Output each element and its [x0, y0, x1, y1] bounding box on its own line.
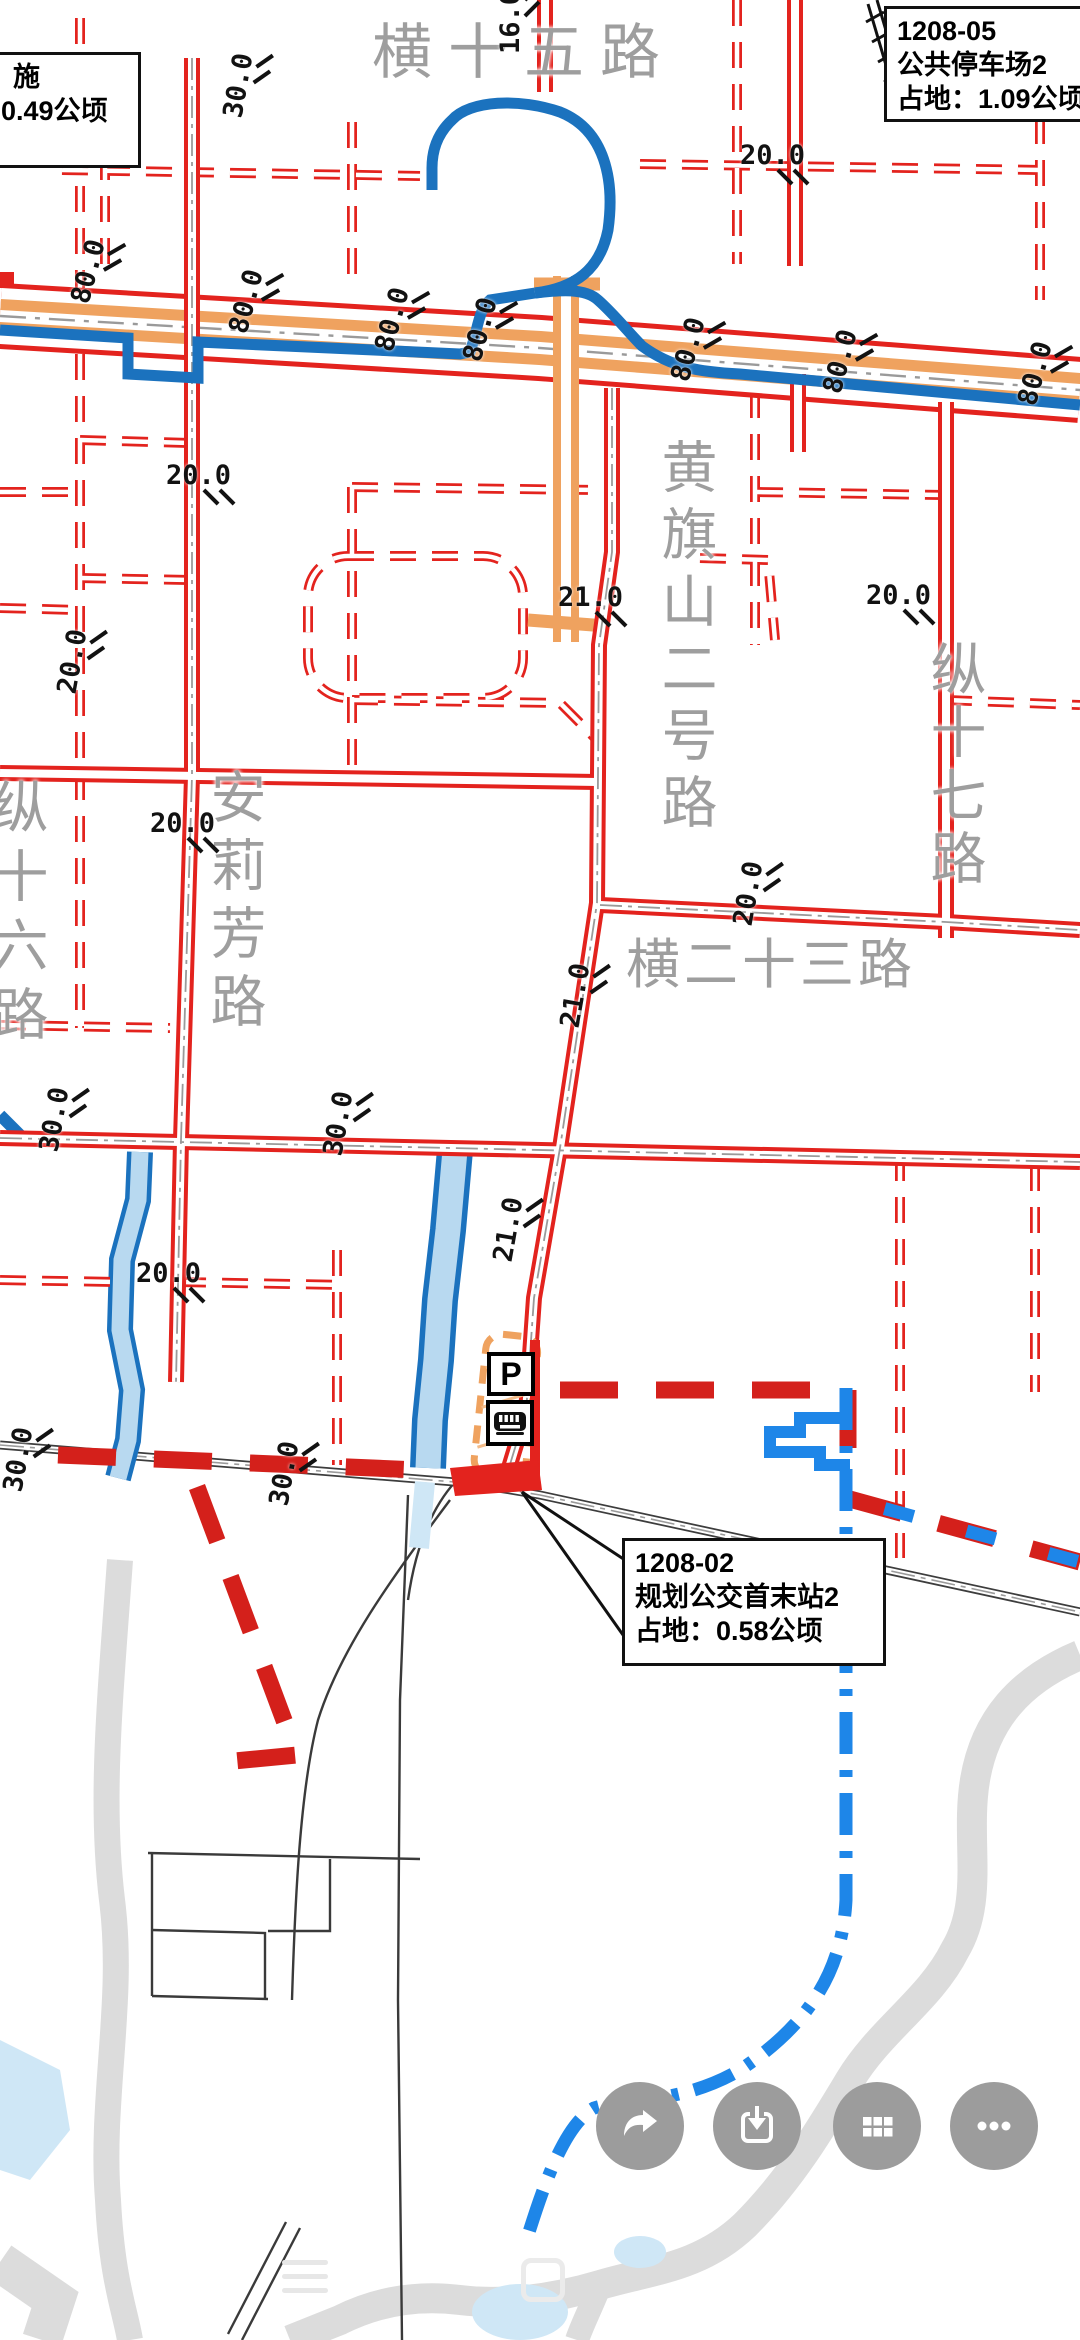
dimension-label: 16.0 — [495, 0, 526, 54]
share-icon — [616, 2102, 664, 2150]
menu-icon[interactable] — [282, 2260, 328, 2302]
parcel-area: 0.49公顷 — [0, 94, 128, 128]
parcel-area: 占地：0.58公顷 — [635, 1614, 873, 1648]
dimension-label: 20.0 — [166, 460, 231, 491]
parcel-name: 施 — [0, 60, 128, 94]
road-label: 纵十六路 — [0, 778, 57, 1054]
map-canvas[interactable] — [0, 0, 1080, 2340]
more-icon — [970, 2102, 1018, 2150]
dimension-label: 20.0 — [136, 1258, 201, 1289]
parcel-name: 公共停车场2 — [897, 48, 1080, 82]
parcel-id: 1208-05 — [897, 14, 1080, 48]
download-icon — [733, 2102, 781, 2150]
gray-river-paths — [0, 1560, 1080, 2340]
parcel-id: 1208-02 — [635, 1546, 873, 1580]
dimension-label: 20.0 — [866, 580, 931, 611]
local-streets — [148, 1482, 455, 2340]
parking-letter: P — [500, 1356, 521, 1393]
download-button[interactable] — [713, 2082, 801, 2170]
parking-icon: P — [487, 1352, 535, 1396]
bus-icon — [486, 1400, 534, 1446]
grid-button[interactable] — [833, 2082, 921, 2170]
dimension-label: 20.0 — [740, 140, 805, 171]
parcel-callout-partial: 施 0.49公顷 — [0, 52, 141, 168]
rivers — [0, 1115, 455, 1548]
bus-glyph — [493, 1409, 527, 1437]
dimension-label: 20.0 — [150, 808, 215, 839]
image-viewer-screen: 横十五路黄旗山二号路纵十七路安莉芳路纵十六路横二十三路16.030.020.08… — [0, 0, 1080, 2340]
grid-icon — [853, 2102, 901, 2150]
recent-apps-icon[interactable] — [521, 2258, 565, 2302]
more-button[interactable] — [950, 2082, 1038, 2170]
parcel-area: 占地：1.09公顷 — [897, 82, 1080, 116]
parcel-name: 规划公交首末站2 — [635, 1580, 873, 1614]
road-label: 黄旗山二号路 — [645, 438, 726, 840]
parcel-callout-1208-05: 1208-05 公共停车场2 占地：1.09公顷 — [884, 6, 1080, 122]
road-label: 横二十三路 — [626, 920, 916, 999]
road-label: 纵十七路 — [914, 640, 995, 892]
dimension-label: 21.0 — [558, 582, 623, 613]
share-button[interactable] — [596, 2082, 684, 2170]
parcel-callout-1208-02: 1208-02 规划公交首末站2 占地：0.58公顷 — [622, 1538, 886, 1666]
